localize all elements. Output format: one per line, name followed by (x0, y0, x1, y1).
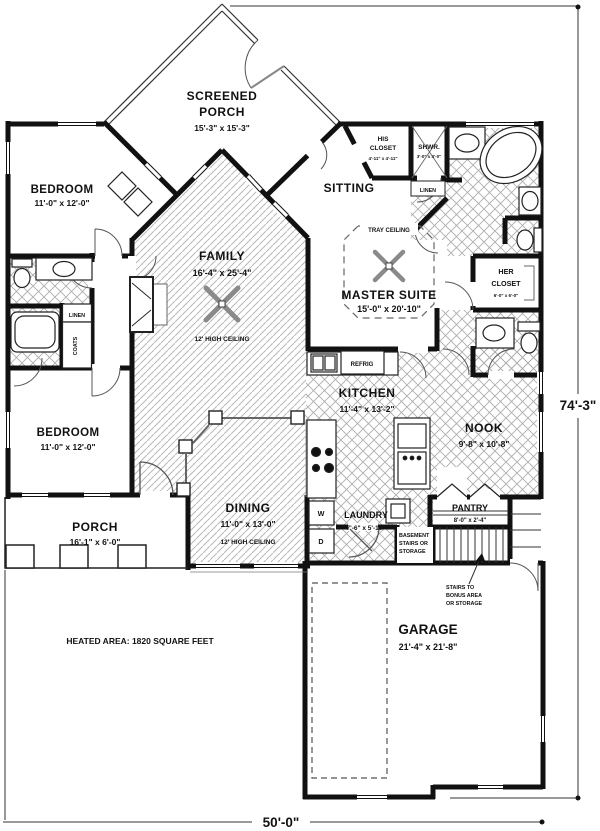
label-screened-porch-dims: 15'-3" x 15'-3" (194, 123, 250, 133)
label-tray-ceiling: TRAY CEILING (368, 228, 410, 234)
stair-treads (440, 527, 503, 563)
label-overall-width: 50'-0" (263, 815, 300, 830)
label-laundry-dims: 7'-6" x 5'-10" (347, 525, 386, 532)
fan-center (219, 301, 225, 307)
column (177, 483, 190, 496)
counter (307, 420, 336, 498)
toilet-tank (12, 259, 32, 267)
label-family: FAMILY (199, 249, 245, 263)
shower-glass (412, 126, 447, 178)
label-screened-porch-2: PORCH (199, 105, 245, 119)
toilet-tank (534, 228, 542, 252)
label-her-closet: HER (498, 267, 514, 276)
hearth (153, 284, 167, 325)
fireplace (130, 277, 153, 332)
label-kitchen-dims: 11'-4" x 13'-2" (339, 404, 394, 414)
label-basement-stairs-3: STORAGE (399, 549, 426, 555)
label-linen-upper: LINEN (420, 188, 436, 194)
label-refrig: REFRIG (351, 362, 374, 368)
label-pantry-dims: 8'-0" x 2'-4" (454, 518, 487, 524)
toilet (521, 333, 537, 353)
label-pantry: PANTRY (452, 503, 488, 513)
label-dining: DINING (226, 501, 271, 515)
label-dining-note: 12' HIGH CEILING (221, 539, 276, 546)
column (209, 411, 222, 424)
label-dining-dims: 11'-0" x 13'-0" (220, 519, 275, 529)
label-coats: COATS (73, 336, 79, 355)
label-nook-dims: 9'-8" x 10'-8" (459, 439, 510, 449)
label-sitting: SITTING (324, 181, 375, 195)
label-garage: GARAGE (398, 622, 457, 637)
vestibule-tile (437, 310, 473, 348)
label-stairs-note-2: BONUS AREA (446, 593, 482, 599)
label-bedroom-lower-dims: 11'-0" x 12'-0" (40, 442, 95, 452)
column (179, 440, 192, 453)
label-shower-dims: 3'-0" x 4'-0" (417, 154, 441, 159)
label-basement-stairs: BASEMENT (399, 533, 430, 539)
label-porch-dims: 16'-1" x 6'-0" (70, 537, 121, 547)
label-heated-area: HEATED AREA: 1820 SQUARE FEET (66, 636, 214, 646)
stairs-arrowhead (475, 553, 485, 562)
label-washer: W (318, 509, 325, 518)
label-family-note: 12' HIGH CEILING (195, 336, 250, 343)
label-her-closet-dims: 6'-0" x 6'-0" (494, 293, 518, 298)
label-basement-stairs-2: STAIRS OR (399, 541, 428, 547)
toilet-tank (518, 322, 540, 331)
toilet (517, 230, 533, 250)
label-bedroom-upper-dims: 11'-0" x 12'-0" (34, 198, 89, 208)
label-stairs-note-3: OR STORAGE (446, 601, 483, 607)
column (291, 411, 304, 424)
floor-plan-page: SCREENED PORCH 15'-3" x 15'-3" BEDROOM 1… (0, 0, 600, 831)
label-his-closet-dims: 4'-11" x 4'-11" (369, 156, 398, 161)
label-laundry: LAUNDRY (344, 510, 388, 520)
label-nook: NOOK (465, 421, 503, 435)
label-master-suite: MASTER SUITE (341, 288, 436, 302)
label-bedroom-upper: BEDROOM (31, 184, 94, 196)
label-his-closet-2: CLOSET (370, 145, 396, 152)
label-garage-dims: 21'-4" x 21'-8" (399, 642, 458, 652)
label-stairs-note: STAIRS TO (446, 585, 474, 591)
label-screened-porch: SCREENED (187, 89, 258, 103)
fan-center (386, 263, 392, 269)
label-kitchen: KITCHEN (339, 386, 396, 400)
closet-rod (524, 266, 534, 300)
label-linen-hall: LINEN (69, 313, 85, 319)
label-his-closet: HIS (378, 136, 390, 143)
label-family-dims: 16'-4" x 25'-4" (193, 268, 252, 278)
bonus-above-dashed (312, 583, 387, 778)
floor-plan-svg: SCREENED PORCH 15'-3" x 15'-3" BEDROOM 1… (0, 0, 600, 831)
label-her-closet-2: CLOSET (491, 279, 521, 288)
toilet (14, 269, 30, 288)
label-shower: SHWR. (418, 144, 440, 151)
label-bedroom-lower: BEDROOM (37, 427, 100, 439)
label-overall-depth: 74'-3" (560, 398, 597, 413)
label-master-suite-dims: 15'-0" x 20'-10" (357, 304, 421, 314)
label-porch: PORCH (72, 520, 118, 534)
label-dryer: D (318, 537, 323, 546)
